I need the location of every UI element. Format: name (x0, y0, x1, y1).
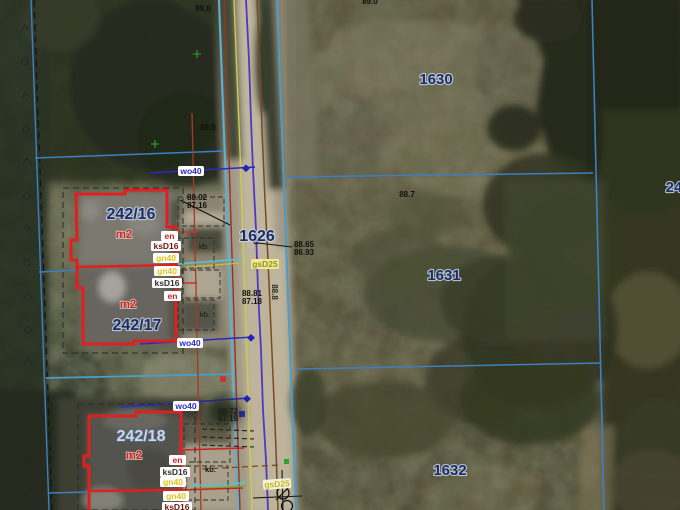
svg-text:24: 24 (666, 179, 680, 196)
svg-text:kb.: kb. (200, 310, 210, 319)
svg-text:m2: m2 (126, 450, 143, 462)
svg-text:gn40: gn40 (157, 266, 177, 276)
svg-text:1631: 1631 (427, 267, 460, 284)
svg-text:m2: m2 (120, 299, 137, 311)
svg-text:1632: 1632 (433, 462, 466, 479)
svg-text:kb.: kb. (199, 242, 209, 251)
svg-text:wo40: wo40 (174, 401, 197, 411)
svg-text:88.8: 88.8 (270, 284, 279, 300)
svg-text:242/17: 242/17 (113, 317, 162, 334)
svg-text:en: en (165, 231, 175, 241)
svg-text:gn40: gn40 (156, 253, 176, 263)
svg-text:242/18: 242/18 (117, 428, 166, 445)
svg-text:ksD16: ksD16 (162, 467, 187, 477)
svg-text:89.0: 89.0 (362, 0, 378, 6)
svg-text:wo40: wo40 (178, 338, 201, 348)
svg-text:gn40: gn40 (163, 477, 183, 487)
svg-text:1626: 1626 (239, 228, 275, 245)
svg-text:ksD16: ksD16 (153, 241, 178, 251)
svg-text:gn40: gn40 (166, 491, 186, 501)
svg-text:89.0: 89.0 (200, 123, 216, 132)
svg-text:gsD25: gsD25 (264, 478, 290, 490)
svg-text:m2: m2 (116, 229, 133, 241)
svg-text:242/16: 242/16 (107, 206, 156, 223)
svg-text:87.18: 87.18 (242, 297, 263, 306)
svg-text:1630: 1630 (419, 71, 452, 88)
svg-text:86.93: 86.93 (294, 248, 315, 257)
svg-text:ksD16: ksD16 (154, 278, 179, 288)
svg-text:kb.: kb. (205, 465, 216, 474)
svg-text:87.16: 87.16 (187, 201, 208, 210)
svg-text:ksD16: ksD16 (164, 502, 189, 510)
svg-text:en: en (168, 291, 178, 301)
svg-text:gsD25: gsD25 (252, 259, 278, 269)
svg-text:wo40: wo40 (179, 166, 202, 176)
svg-text:88.7: 88.7 (399, 190, 415, 199)
svg-text:89.0: 89.0 (195, 4, 211, 13)
svg-text:en: en (173, 455, 183, 465)
